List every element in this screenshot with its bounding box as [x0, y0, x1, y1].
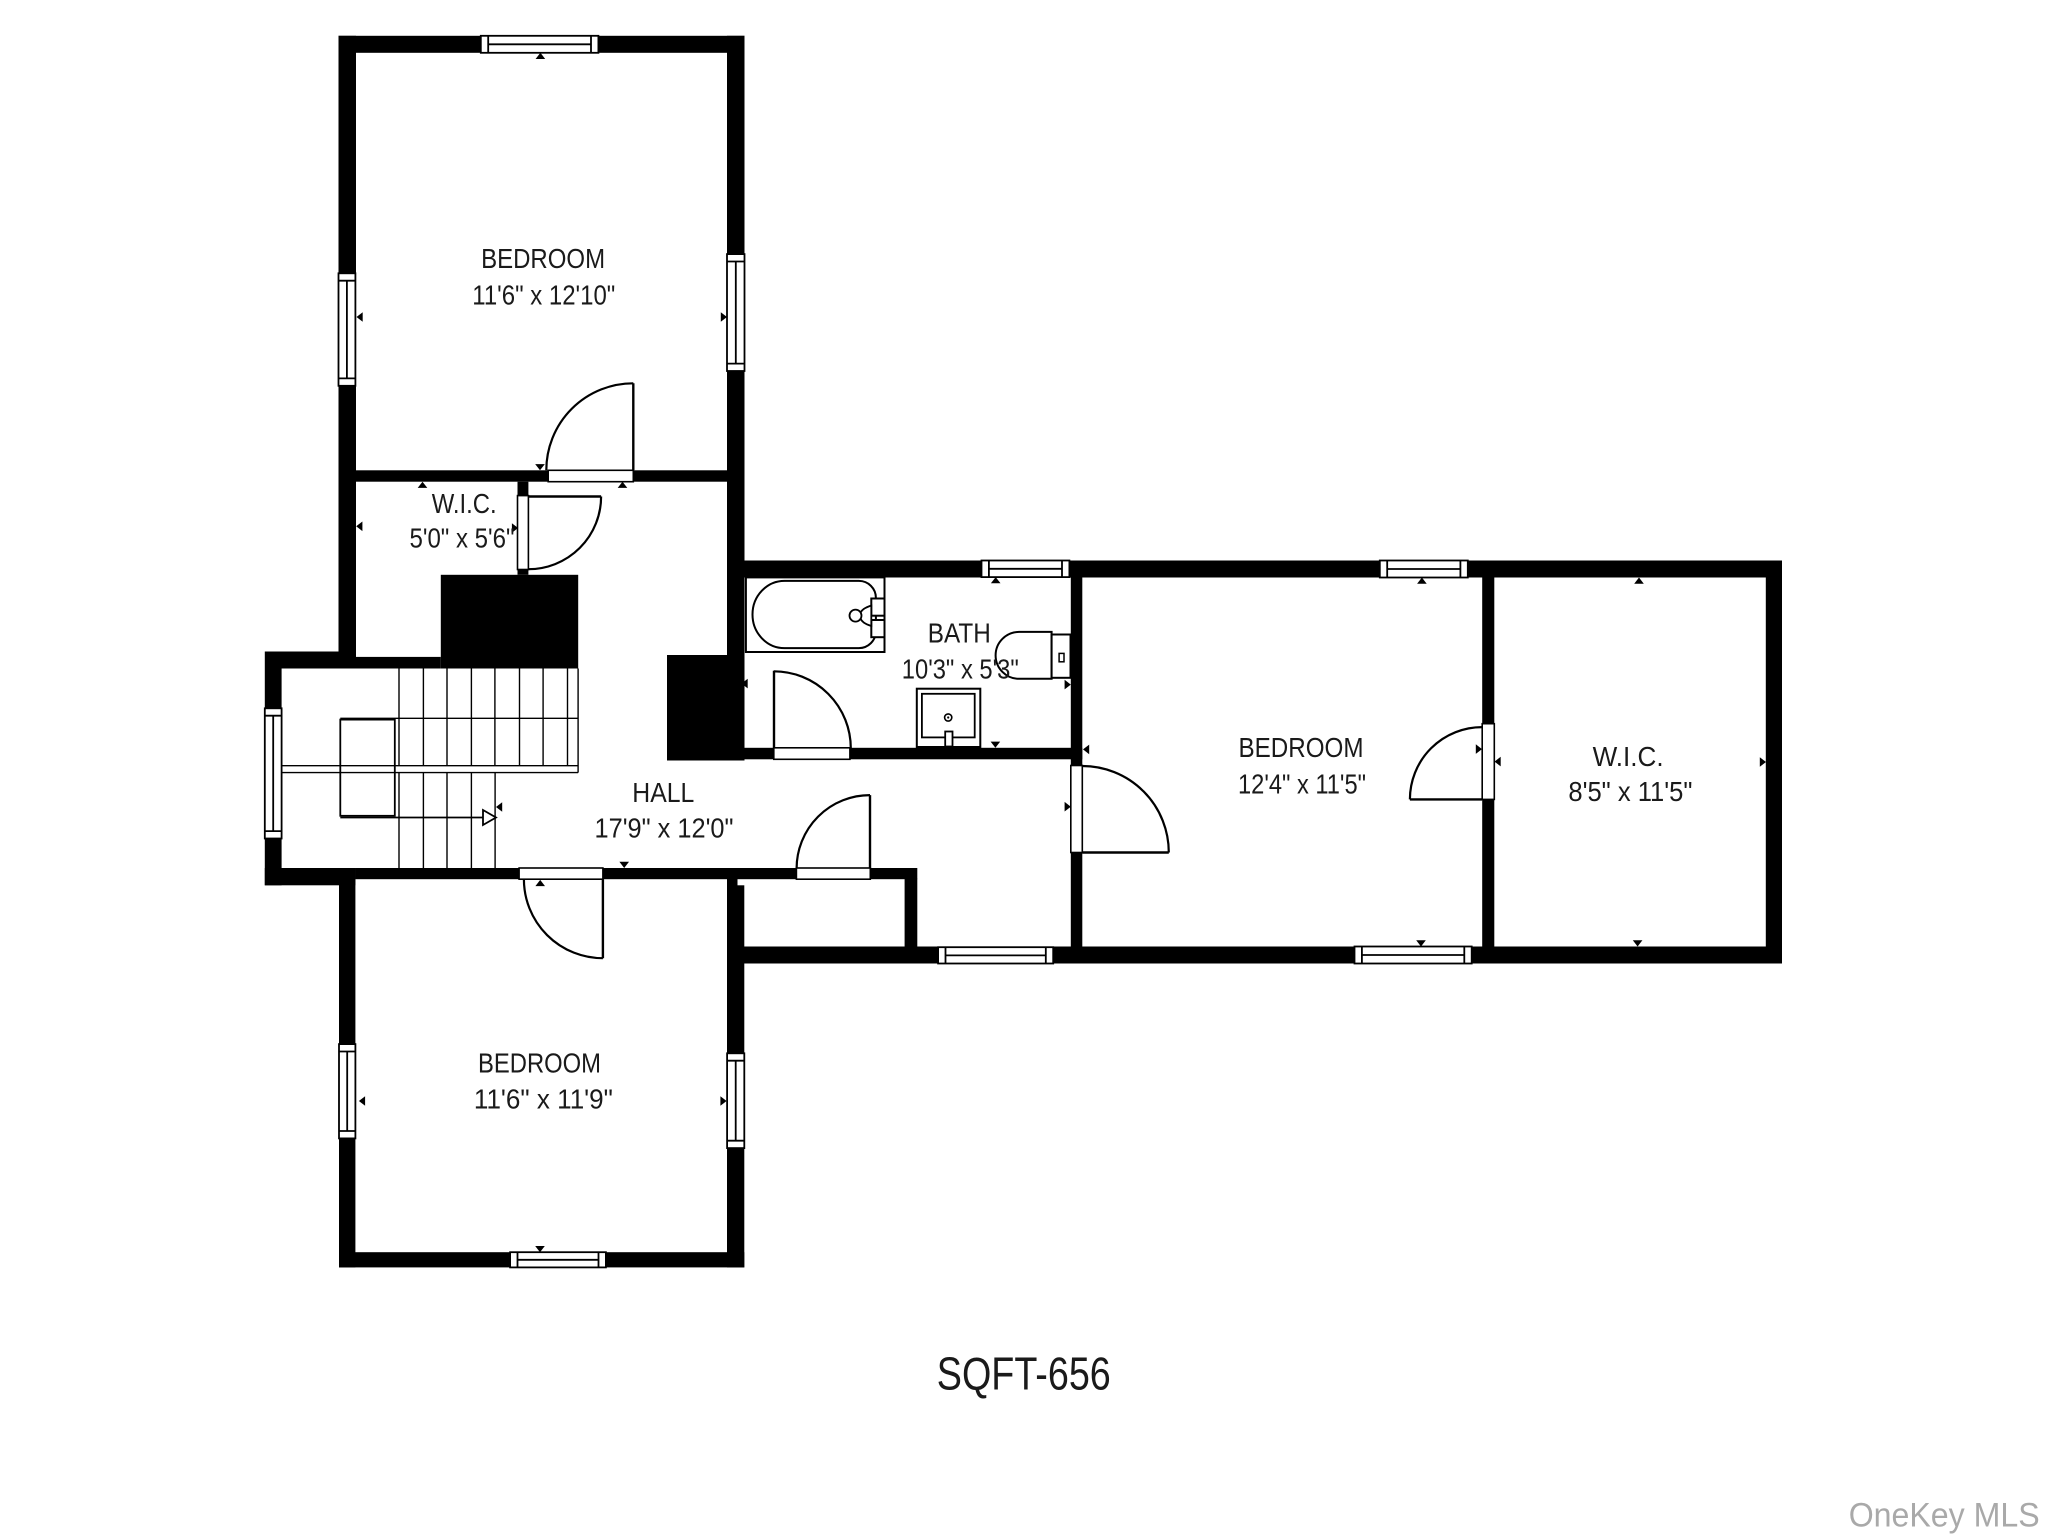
svg-text:W.I.C.: W.I.C. — [432, 488, 497, 519]
svg-text:SQFT-656: SQFT-656 — [937, 1347, 1111, 1399]
svg-text:BEDROOM: BEDROOM — [481, 243, 605, 274]
svg-text:BATH: BATH — [928, 617, 991, 648]
svg-text:BEDROOM: BEDROOM — [1239, 732, 1364, 763]
svg-text:12'4" x 11'5": 12'4" x 11'5" — [1238, 768, 1366, 799]
svg-text:8'5" x 11'5": 8'5" x 11'5" — [1568, 776, 1692, 807]
svg-text:BEDROOM: BEDROOM — [478, 1048, 601, 1079]
svg-text:5'0" x 5'6": 5'0" x 5'6" — [410, 522, 515, 553]
svg-text:17'9" x 12'0": 17'9" x 12'0" — [595, 813, 734, 844]
svg-text:11'6" x 12'10": 11'6" x 12'10" — [472, 279, 615, 310]
svg-text:OneKey MLS: OneKey MLS — [1849, 1496, 2040, 1534]
svg-text:10'3" x 5'3": 10'3" x 5'3" — [902, 653, 1019, 684]
svg-text:11'6" x 11'9": 11'6" x 11'9" — [474, 1084, 613, 1115]
svg-text:HALL: HALL — [632, 777, 694, 808]
svg-text:W.I.C.: W.I.C. — [1593, 741, 1664, 772]
